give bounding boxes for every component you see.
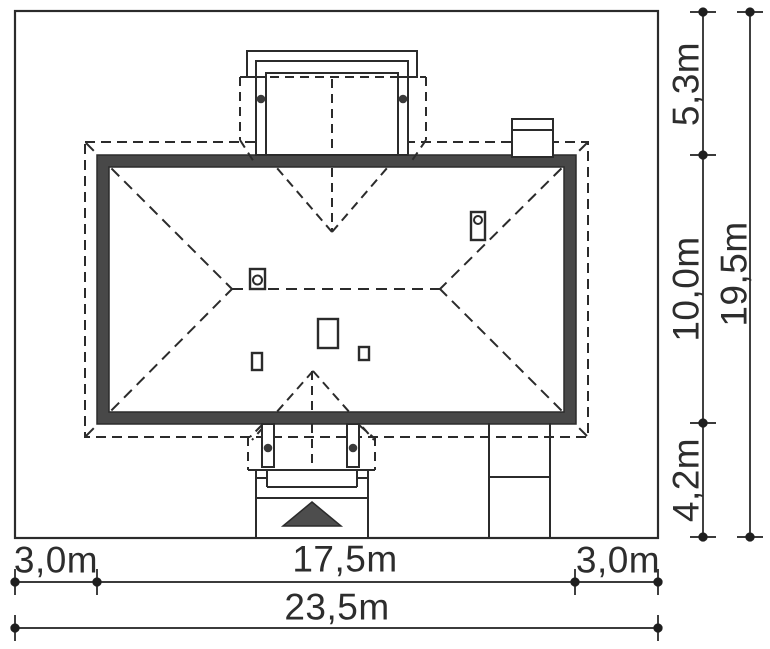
- dim-label-total-depth: 19,5m: [716, 221, 753, 326]
- dormer-post-left: [256, 77, 266, 155]
- site-plan: 3,0m 17,5m 3,0m 23,5m 5,3m 10,0m 4,2m 19…: [0, 0, 770, 649]
- dim-label-left-setback: 3,0m: [14, 542, 98, 579]
- flue-circle-icon: [474, 216, 482, 224]
- chimney-top: [512, 119, 553, 157]
- dim-label-house-width: 17,5m: [292, 541, 397, 578]
- entrance-steps: [256, 470, 368, 538]
- dim-label-top-setback: 5,3m: [668, 42, 705, 126]
- column-dot-icon: [399, 95, 408, 104]
- roof-hatch: [318, 319, 338, 348]
- flue-circle-icon: [253, 276, 262, 285]
- vent: [359, 347, 369, 360]
- dim-label-total-width: 23,5m: [284, 589, 389, 626]
- column-dot-icon: [349, 444, 358, 453]
- column-dot-icon: [257, 95, 266, 104]
- dim-label-bottom-setback: 4,2m: [668, 438, 705, 522]
- vent: [252, 353, 262, 370]
- column-dot-icon: [264, 444, 273, 453]
- dormer-post-right: [398, 77, 408, 155]
- dim-label-house-depth: 10,0m: [668, 236, 705, 341]
- dim-label-right-setback: 3,0m: [576, 542, 660, 579]
